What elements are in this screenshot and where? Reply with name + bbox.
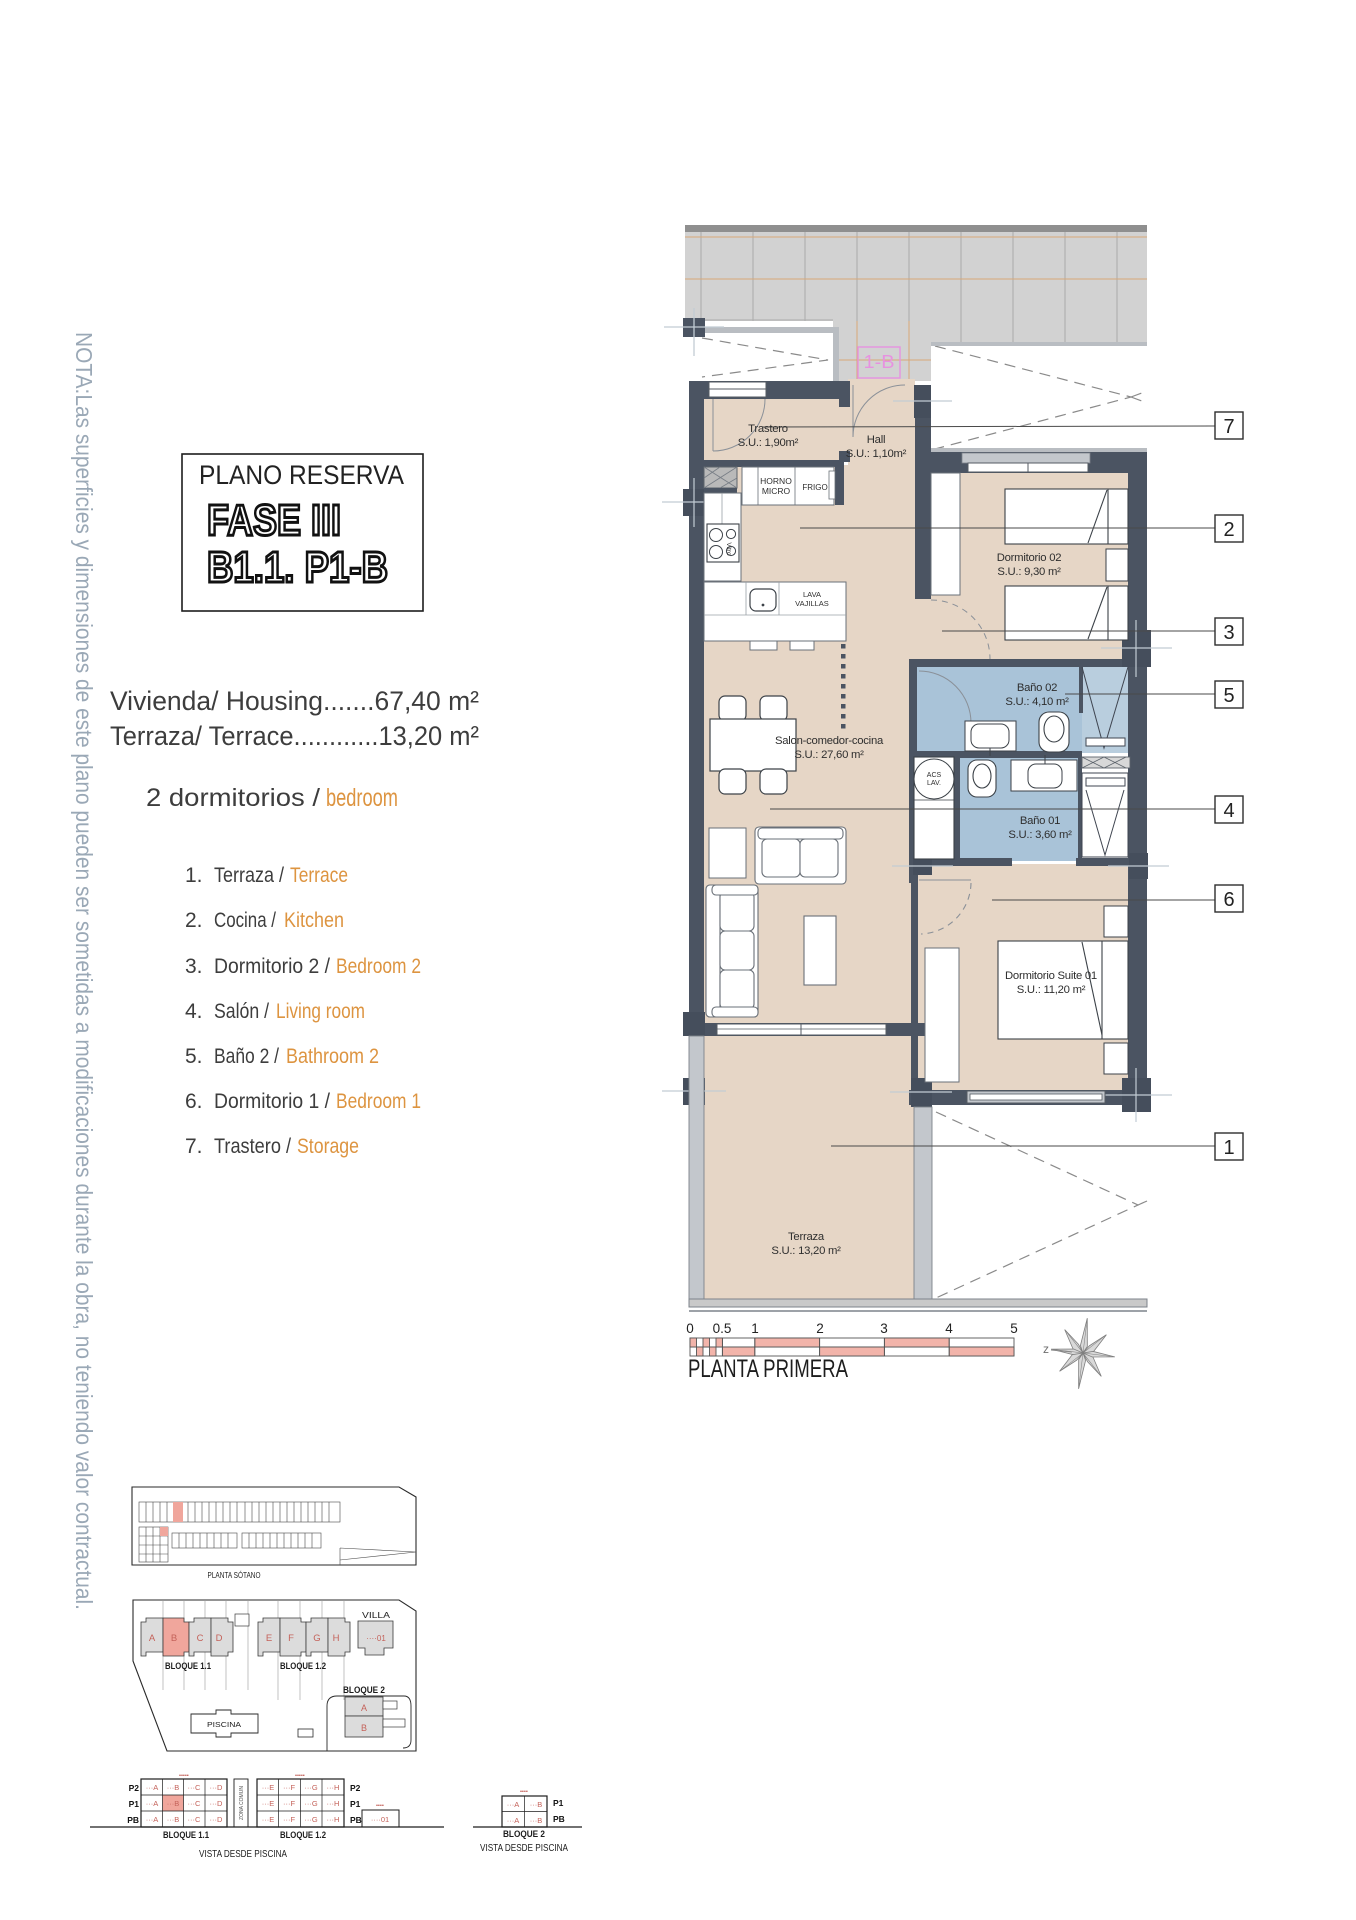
svg-text:VISTA DESDE PISCINA: VISTA DESDE PISCINA xyxy=(199,1849,287,1860)
svg-text:0: 0 xyxy=(686,1321,694,1336)
svg-text:···B: ···B xyxy=(167,1783,180,1792)
svg-text:5: 5 xyxy=(1223,685,1234,707)
svg-text:···D: ···D xyxy=(210,1799,223,1808)
svg-text:Bathroom 2: Bathroom 2 xyxy=(286,1045,379,1068)
svg-text:···F: ···F xyxy=(283,1815,295,1824)
svg-text:HORNO: HORNO xyxy=(760,476,792,486)
svg-text:Salón /: Salón / xyxy=(214,1000,269,1023)
svg-text:1: 1 xyxy=(751,1321,759,1336)
svg-text:VILLA: VILLA xyxy=(362,1611,391,1620)
svg-text:···C: ···C xyxy=(188,1799,201,1808)
svg-text:P1: P1 xyxy=(350,1799,361,1809)
svg-text:···D: ···D xyxy=(210,1815,223,1824)
svg-text:PB: PB xyxy=(350,1815,362,1825)
svg-text:···G: ···G xyxy=(304,1783,317,1792)
svg-text:···C: ···C xyxy=(188,1815,201,1824)
svg-text:FASE III: FASE III xyxy=(207,496,341,545)
svg-text:BLOQUE 2: BLOQUE 2 xyxy=(343,1685,385,1695)
svg-text:···D: ···D xyxy=(210,1783,223,1792)
svg-text:A: A xyxy=(361,1703,367,1713)
svg-text:PLANTA PRIMERA: PLANTA PRIMERA xyxy=(688,1355,848,1383)
svg-text:P2: P2 xyxy=(129,1783,140,1793)
svg-text:Dormitorio 02: Dormitorio 02 xyxy=(997,552,1062,564)
svg-text:BLOQUE 2: BLOQUE 2 xyxy=(503,1829,545,1839)
svg-text:6: 6 xyxy=(1223,889,1234,911)
svg-text:E: E xyxy=(266,1633,272,1644)
svg-text:Salon-comedor-cocina: Salon-comedor-cocina xyxy=(775,735,884,747)
svg-text:····01: ····01 xyxy=(366,1634,386,1643)
svg-text:0.5: 0.5 xyxy=(713,1321,732,1336)
svg-text:Dormitorio Suite 01: Dormitorio Suite 01 xyxy=(1005,970,1097,982)
svg-text:▪▪▪▪▪: ▪▪▪▪▪ xyxy=(179,1773,189,1779)
svg-text:PB: PB xyxy=(553,1814,565,1824)
svg-text:···C: ···C xyxy=(188,1783,201,1792)
svg-text:···E: ···E xyxy=(262,1783,275,1792)
svg-text:4: 4 xyxy=(945,1321,953,1336)
svg-text:Vitro: Vitro xyxy=(725,542,732,556)
svg-text:PLANO RESERVA: PLANO RESERVA xyxy=(199,460,404,490)
svg-text:Vivienda/ Housing.......67,40: Vivienda/ Housing.......67,40 m² xyxy=(110,686,479,716)
svg-text:PB: PB xyxy=(127,1815,139,1825)
svg-text:Trastero: Trastero xyxy=(748,423,788,435)
svg-text:S.U.: 9,30 m²: S.U.: 9,30 m² xyxy=(997,566,1061,578)
svg-text:P2: P2 xyxy=(350,1783,361,1793)
svg-text:ACS: ACS xyxy=(927,772,942,779)
svg-text:▪▪▪▪: ▪▪▪▪ xyxy=(520,1789,528,1795)
svg-text:7.: 7. xyxy=(185,1135,203,1158)
svg-text:6.: 6. xyxy=(185,1090,203,1113)
svg-text:▪▪▪▪: ▪▪▪▪ xyxy=(376,1803,384,1809)
svg-text:Terraza /: Terraza / xyxy=(214,864,284,887)
svg-text:PISCINA: PISCINA xyxy=(207,1720,241,1729)
svg-text:B: B xyxy=(361,1723,367,1733)
svg-text:G: G xyxy=(313,1633,320,1644)
svg-text:···H: ···H xyxy=(327,1783,340,1792)
svg-text:F: F xyxy=(288,1633,294,1644)
svg-text:···F: ···F xyxy=(283,1783,295,1792)
svg-text:···H: ···H xyxy=(327,1799,340,1808)
svg-text:C: C xyxy=(197,1633,204,1644)
svg-text:···A: ···A xyxy=(146,1783,159,1792)
svg-text:FRIGO: FRIGO xyxy=(802,483,827,492)
svg-text:Bedroom 2: Bedroom 2 xyxy=(336,955,421,978)
svg-text:Terraza: Terraza xyxy=(788,1231,825,1243)
svg-text:4.: 4. xyxy=(185,1000,203,1023)
svg-text:Kitchen: Kitchen xyxy=(284,909,344,932)
svg-text:···A: ···A xyxy=(507,1800,520,1809)
svg-text:NOTA:Las superficies y dimensi: NOTA:Las superficies y dimensiones de es… xyxy=(71,332,97,1610)
svg-text:···B: ···B xyxy=(167,1799,180,1808)
svg-text:bedroom: bedroom xyxy=(326,784,398,812)
svg-text:3: 3 xyxy=(1223,622,1234,644)
svg-text:7: 7 xyxy=(1223,416,1234,438)
svg-text:···E: ···E xyxy=(262,1815,275,1824)
svg-text:2.: 2. xyxy=(185,909,203,932)
svg-text:1: 1 xyxy=(1223,1137,1234,1159)
svg-text:VAJILLAS: VAJILLAS xyxy=(795,599,829,608)
svg-text:Trastero /: Trastero / xyxy=(214,1135,291,1158)
svg-text:S.U.: 1,90m²: S.U.: 1,90m² xyxy=(738,437,799,449)
svg-text:Baño 2 /: Baño 2 / xyxy=(214,1045,279,1068)
svg-text:···A: ···A xyxy=(146,1799,159,1808)
svg-text:4: 4 xyxy=(1223,800,1234,822)
svg-text:B: B xyxy=(171,1633,177,1644)
svg-text:5: 5 xyxy=(1010,1321,1018,1336)
svg-text:A: A xyxy=(149,1633,156,1644)
svg-text:BLOQUE 1.1: BLOQUE 1.1 xyxy=(165,1661,211,1671)
svg-text:H: H xyxy=(333,1633,340,1644)
svg-text:2: 2 xyxy=(816,1321,824,1336)
svg-text:z: z xyxy=(1043,1342,1049,1356)
svg-text:Baño 01: Baño 01 xyxy=(1020,815,1060,827)
svg-text:···G: ···G xyxy=(304,1815,317,1824)
svg-text:ZONA COMUN: ZONA COMUN xyxy=(239,1786,245,1820)
svg-text:Cocina /: Cocina / xyxy=(214,909,276,932)
svg-text:Storage: Storage xyxy=(297,1135,359,1158)
svg-text:S.U.: 11,20 m²: S.U.: 11,20 m² xyxy=(1017,984,1086,996)
svg-text:2: 2 xyxy=(1223,519,1234,541)
svg-text:1-B: 1-B xyxy=(864,352,895,372)
svg-text:···A: ···A xyxy=(507,1816,520,1825)
svg-text:LAV.: LAV. xyxy=(927,780,941,787)
svg-text:Bedroom 1: Bedroom 1 xyxy=(336,1090,421,1113)
svg-text:S.U.: 3,60 m²: S.U.: 3,60 m² xyxy=(1008,829,1072,841)
svg-text:···G: ···G xyxy=(304,1799,317,1808)
svg-text:···F: ···F xyxy=(283,1799,295,1808)
svg-text:···B: ···B xyxy=(530,1816,543,1825)
svg-text:P1: P1 xyxy=(129,1799,140,1809)
svg-text:PLANTA SÓTANO: PLANTA SÓTANO xyxy=(208,1570,261,1580)
svg-text:Hall: Hall xyxy=(867,434,885,446)
svg-text:····01: ····01 xyxy=(371,1815,389,1824)
svg-text:1.: 1. xyxy=(185,864,203,887)
svg-text:2 dormitorios /: 2 dormitorios / xyxy=(146,784,320,812)
svg-text:Living room: Living room xyxy=(276,1000,365,1023)
svg-text:BLOQUE 1.2: BLOQUE 1.2 xyxy=(280,1830,326,1840)
svg-text:BLOQUE 1.1: BLOQUE 1.1 xyxy=(163,1830,209,1840)
svg-text:BLOQUE 1.2: BLOQUE 1.2 xyxy=(280,1661,326,1671)
svg-text:▪▪▪▪▪: ▪▪▪▪▪ xyxy=(295,1773,305,1779)
svg-text:D: D xyxy=(216,1633,223,1644)
svg-text:Terraza/ Terrace............13: Terraza/ Terrace............13,20 m² xyxy=(110,721,479,751)
svg-text:VISTA DESDE PISCINA: VISTA DESDE PISCINA xyxy=(480,1843,568,1854)
svg-text:S.U.: 4,10 m²: S.U.: 4,10 m² xyxy=(1005,696,1069,708)
svg-text:S.U.: 1,10m²: S.U.: 1,10m² xyxy=(846,448,907,460)
svg-text:Terrace: Terrace xyxy=(290,864,348,887)
svg-text:P1: P1 xyxy=(553,1798,564,1808)
svg-text:Dormitorio 2 /: Dormitorio 2 / xyxy=(214,955,330,978)
svg-text:LAVA: LAVA xyxy=(803,590,821,599)
svg-text:Baño 02: Baño 02 xyxy=(1017,682,1057,694)
svg-text:3.: 3. xyxy=(185,955,203,978)
svg-text:···E: ···E xyxy=(262,1799,275,1808)
svg-text:···B: ···B xyxy=(167,1815,180,1824)
svg-text:Dormitorio 1 /: Dormitorio 1 / xyxy=(214,1090,330,1113)
svg-text:5.: 5. xyxy=(185,1045,203,1068)
svg-text:3: 3 xyxy=(880,1321,888,1336)
svg-text:MICRO: MICRO xyxy=(762,486,791,496)
svg-text:S.U.: 27,60 m²: S.U.: 27,60 m² xyxy=(794,749,864,761)
svg-text:···H: ···H xyxy=(327,1815,340,1824)
svg-text:···B: ···B xyxy=(530,1800,543,1809)
svg-text:B1.1. P1-B: B1.1. P1-B xyxy=(207,543,388,592)
svg-text:···A: ···A xyxy=(146,1815,159,1824)
svg-text:S.U.: 13,20 m²: S.U.: 13,20 m² xyxy=(771,1245,841,1257)
